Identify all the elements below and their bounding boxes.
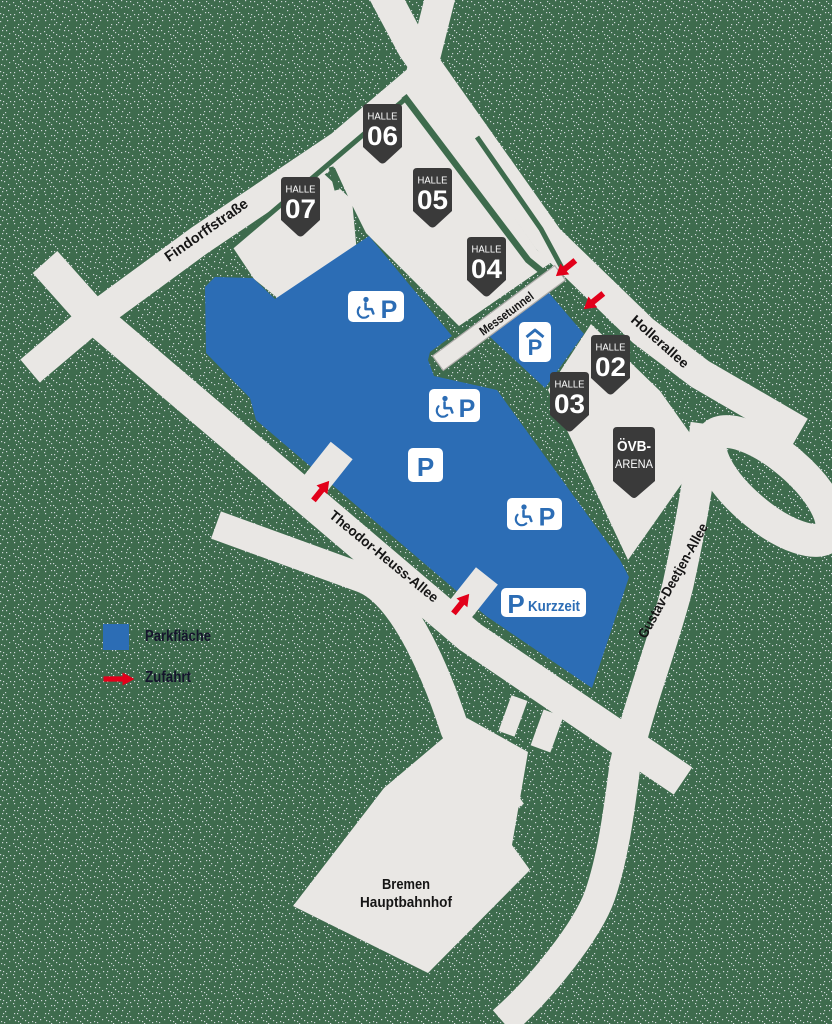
- svg-text:06: 06: [367, 121, 398, 151]
- svg-text:Hauptbahnhof: Hauptbahnhof: [360, 894, 453, 911]
- svg-text:P: P: [539, 504, 556, 532]
- svg-text:Kurzzeit: Kurzzeit: [528, 598, 580, 615]
- svg-text:P: P: [507, 589, 524, 619]
- svg-text:07: 07: [285, 194, 316, 224]
- svg-text:04: 04: [471, 254, 502, 284]
- svg-text:Zufahrt: Zufahrt: [145, 669, 191, 686]
- svg-text:ARENA: ARENA: [615, 459, 653, 471]
- svg-text:P: P: [417, 452, 434, 482]
- svg-text:Parkfläche: Parkfläche: [145, 628, 211, 645]
- svg-text:Bremen: Bremen: [382, 876, 430, 893]
- svg-text:P: P: [381, 296, 398, 324]
- svg-text:ÖVB-: ÖVB-: [617, 438, 651, 455]
- svg-text:P: P: [528, 335, 543, 360]
- svg-text:P: P: [459, 395, 476, 423]
- svg-text:02: 02: [595, 352, 626, 382]
- svg-text:03: 03: [554, 389, 585, 419]
- svg-text:05: 05: [417, 185, 448, 215]
